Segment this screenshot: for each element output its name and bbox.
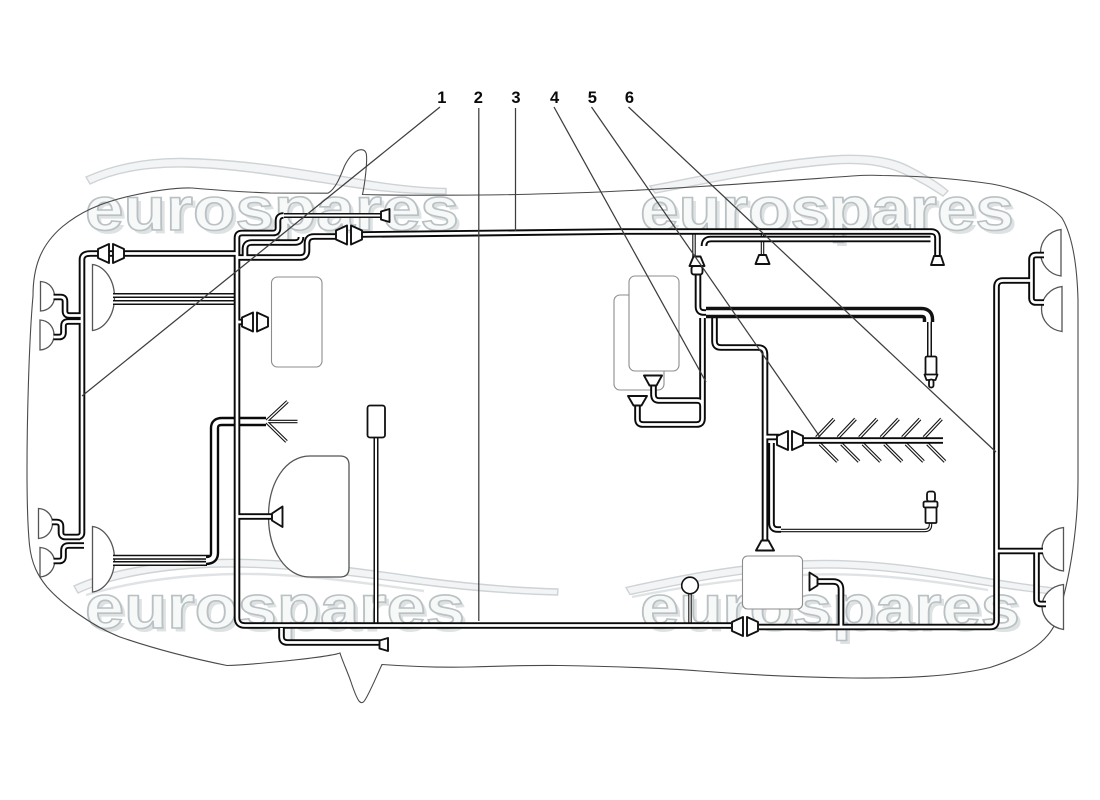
svg-text:4: 4	[550, 89, 560, 107]
svg-text:eurospares: eurospares	[85, 573, 465, 641]
svg-text:6: 6	[625, 89, 634, 107]
svg-text:5: 5	[588, 89, 597, 107]
svg-text:2: 2	[474, 89, 483, 107]
svg-text:1: 1	[437, 89, 446, 107]
svg-text:3: 3	[511, 89, 520, 107]
